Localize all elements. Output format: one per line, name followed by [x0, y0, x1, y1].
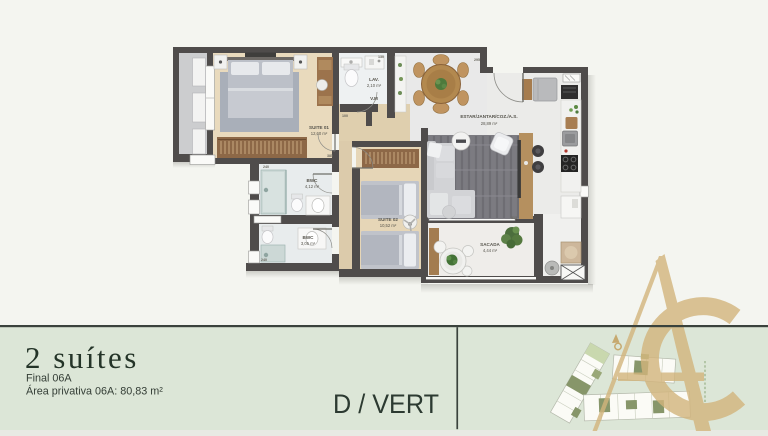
svg-text:313: 313 — [511, 216, 517, 220]
svg-text:4,44 m²: 4,44 m² — [483, 248, 498, 253]
svg-text:SUITE 02: SUITE 02 — [378, 217, 398, 222]
svg-text:SACADA: SACADA — [480, 242, 500, 247]
svg-text:BWC: BWC — [307, 178, 319, 183]
svg-text:LAV.: LAV. — [369, 77, 379, 82]
svg-text:SUITE 01: SUITE 01 — [309, 125, 329, 130]
svg-text:10,52 m²: 10,52 m² — [380, 223, 397, 228]
svg-text:240: 240 — [263, 165, 269, 169]
svg-text:385: 385 — [327, 154, 333, 158]
svg-text:100: 100 — [342, 114, 348, 118]
svg-text:28,89 m²: 28,89 m² — [481, 121, 498, 126]
svg-text:12,60 m²: 12,60 m² — [311, 131, 328, 136]
svg-text:Área privativa 06A: 80,83 m²: Área privativa 06A: 80,83 m² — [26, 385, 163, 398]
svg-text:240: 240 — [261, 258, 267, 262]
svg-text:130: 130 — [378, 55, 384, 59]
svg-text:ESTAR/JANTAR/COZ./A.S.: ESTAR/JANTAR/COZ./A.S. — [460, 114, 517, 119]
svg-text:2,10 m²: 2,10 m² — [367, 83, 382, 88]
svg-text:4,12 m²: 4,12 m² — [305, 184, 320, 189]
svg-text:V.M: V.M — [370, 96, 378, 101]
svg-text:D / VERT: D / VERT — [333, 389, 439, 419]
svg-text:295: 295 — [474, 58, 480, 62]
svg-text:BWC: BWC — [303, 235, 315, 240]
svg-text:2 suítes: 2 suítes — [25, 340, 139, 375]
svg-text:3,05 m²: 3,05 m² — [301, 241, 316, 246]
svg-text:Final 06A: Final 06A — [26, 373, 72, 385]
